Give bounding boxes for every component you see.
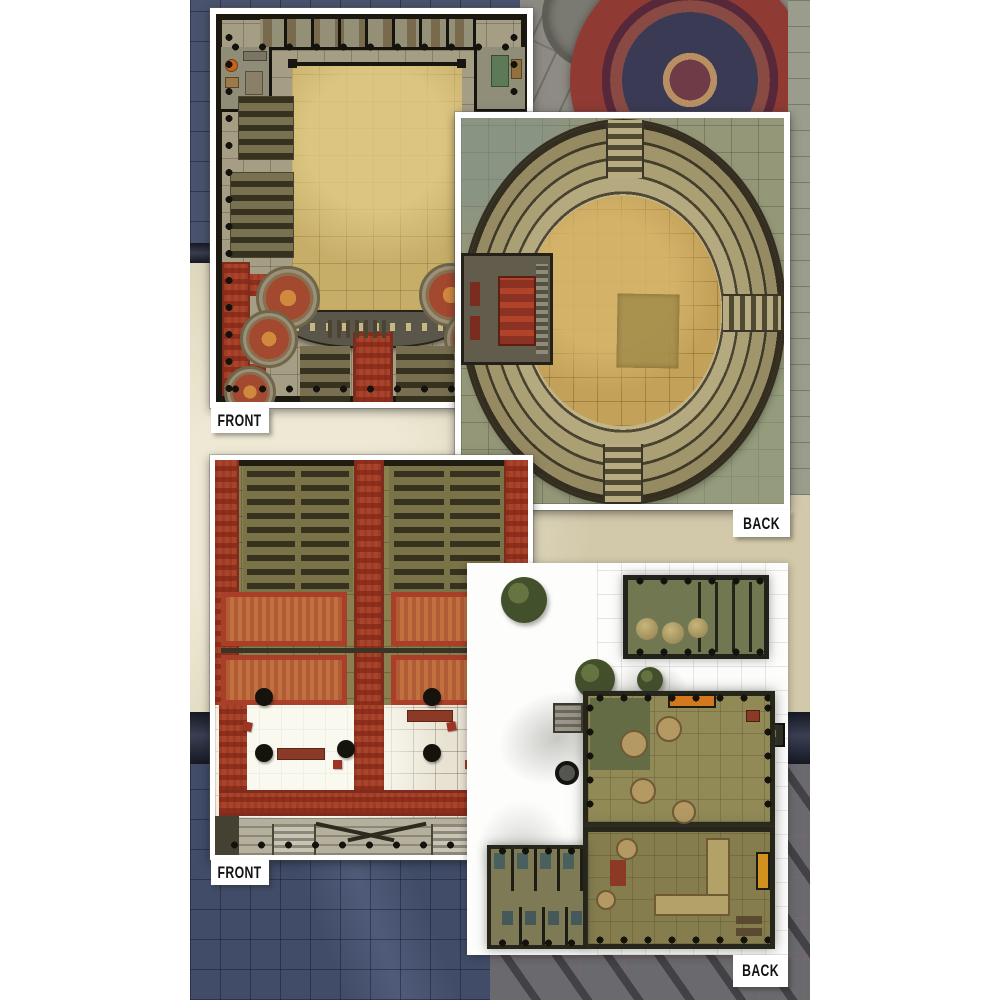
beam-post [288,59,297,68]
haystack [636,618,658,640]
red-bench [277,748,325,760]
round-table [596,890,616,910]
tavern-main-hall [583,691,775,827]
terrace [221,592,347,646]
arena-field [525,196,721,426]
bar-counter-horizontal [654,894,730,916]
stage-bench [470,282,480,306]
beam [292,62,462,66]
side-label-back-1: BACK [733,510,790,537]
stair-aisle-right [723,294,781,332]
map-panel-arena: BACK [455,112,790,510]
table [245,71,263,95]
red-seat [242,721,253,732]
stage-rug [498,276,536,346]
beds-row [494,853,582,869]
pillar [423,688,441,706]
red-bench [407,710,453,722]
side-label-text: FRONT [218,411,262,431]
wall-columns [222,42,521,52]
bench-column [301,471,349,589]
bench-rows [230,172,294,258]
terrace [221,655,347,705]
stall-dividers [698,582,762,652]
tree [637,667,663,693]
map-panel-inn-courtyard: BACK [467,563,788,955]
red-path-center [354,705,384,802]
wall-columns [491,847,583,855]
inn-guest-wing [487,845,587,949]
red-seat [333,760,342,769]
shelf [243,51,267,61]
bench-column [247,471,295,589]
field-square-patch [616,293,679,368]
round-table [656,716,682,742]
pillar [255,744,273,762]
wall-columns [764,696,772,822]
side-label-front-1: FRONT [211,408,269,433]
stair-aisle-bottom [603,444,643,502]
wall-columns [224,24,234,392]
stable-pavilion [623,575,769,659]
bench-rows [238,96,294,160]
stone-strip-right [788,0,810,495]
tavern-lower-hall [583,827,775,949]
wall-columns [491,939,583,947]
pillar [255,688,273,706]
rug [610,860,626,886]
side-label-text: FRONT [218,863,262,883]
inn-courtyard-map [467,563,788,955]
small-benches [328,320,388,338]
battle-maps-product-collage: FRONT BACK [0,0,1000,1000]
bench-hall-left [243,466,353,592]
red-path-left [219,705,247,802]
haystack [688,618,708,638]
brazier-dais [240,310,298,368]
wall-columns [588,936,770,944]
stage-bench [470,316,480,340]
tree [501,577,547,623]
well [555,761,579,785]
side-label-text: BACK [742,961,779,981]
beam-post [457,59,466,68]
pillar [423,744,441,762]
round-table [630,778,656,804]
side-label-text: BACK [743,514,780,534]
bench-column [394,471,444,589]
arena-stage [461,253,553,365]
wall-columns [588,694,770,702]
wall-columns [628,577,764,585]
pillar [337,740,355,758]
porch-steps [553,703,583,733]
stage-steps [536,264,548,354]
wall-columns [586,696,594,822]
bench [736,916,762,924]
red-seat [446,721,456,731]
haystack [662,622,684,644]
bed [491,55,509,87]
side-label-back-2: BACK [733,955,788,987]
side-label-front-2: FRONT [211,860,269,885]
orange-cabinet [756,852,770,890]
round-table [672,800,696,824]
stair-aisle-top [606,120,644,178]
round-table [616,838,638,860]
red-chest [746,710,760,722]
arena-map [461,118,784,504]
beds-row [502,911,582,925]
wall-columns [628,648,764,656]
round-table [620,730,648,758]
bench [736,928,762,936]
